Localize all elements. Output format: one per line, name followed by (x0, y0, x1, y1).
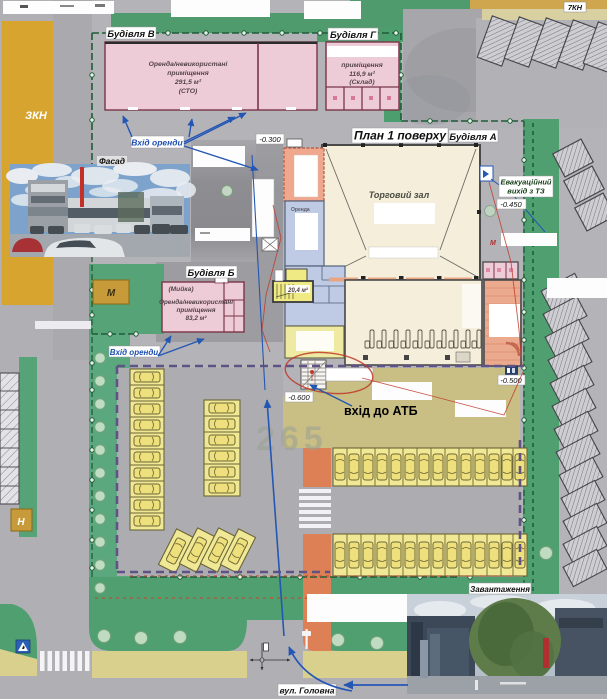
svg-text:Евакуаційний: Евакуаційний (500, 178, 551, 187)
svg-text:приміщення: приміщення (167, 69, 209, 77)
svg-text:вихід з ТЗ: вихід з ТЗ (507, 187, 545, 196)
svg-text:Оренда/невикористані: Оренда/невикористані (149, 60, 228, 68)
svg-text:Завантаження: Завантаження (470, 585, 530, 594)
svg-text:Фасад: Фасад (99, 156, 125, 166)
svg-text:М: М (107, 288, 116, 299)
svg-text:Н: Н (17, 517, 25, 528)
svg-text:291,5 м²: 291,5 м² (174, 79, 202, 86)
svg-text:Оренда: Оренда (291, 207, 310, 213)
svg-text:приміщення: приміщення (176, 306, 215, 314)
svg-text:Оренда/невикористані: Оренда/невикористані (159, 298, 233, 306)
svg-text:Будівля Г: Будівля Г (330, 30, 377, 41)
svg-text:Будівля Б: Будівля Б (187, 268, 234, 279)
svg-text:20,4 м²: 20,4 м² (287, 287, 309, 294)
svg-text:265: 265 (256, 420, 328, 458)
svg-text:83,2 м²: 83,2 м² (185, 315, 207, 322)
svg-text:вул. Головна: вул. Головна (280, 686, 335, 696)
svg-text:-0.450: -0.450 (500, 200, 522, 209)
svg-text:(Мийка): (Мийка) (168, 285, 193, 293)
svg-text:М: М (490, 240, 496, 247)
svg-text:Вхід оренди: Вхід оренди (131, 138, 183, 148)
svg-text:Вхід оренди: Вхід оренди (110, 348, 159, 357)
svg-text:-0.300: -0.300 (259, 135, 281, 144)
svg-text:Торговий зал: Торговий зал (369, 190, 430, 200)
svg-text:(Склад): (Склад) (349, 78, 375, 86)
svg-text:Будівля В: Будівля В (107, 29, 154, 40)
svg-text:7КН: 7КН (568, 3, 583, 12)
svg-text:116,9 м²: 116,9 м² (349, 71, 375, 78)
svg-text:(СТО): (СТО) (179, 88, 198, 95)
svg-text:вхід до АТБ: вхід до АТБ (344, 404, 418, 418)
svg-text:План 1 поверху: План 1 поверху (354, 129, 447, 143)
svg-text:-0.600: -0.600 (288, 393, 310, 402)
svg-text:ЗКН: ЗКН (25, 110, 48, 122)
svg-text:Будівля А: Будівля А (449, 132, 496, 143)
svg-text:приміщення: приміщення (341, 61, 383, 69)
